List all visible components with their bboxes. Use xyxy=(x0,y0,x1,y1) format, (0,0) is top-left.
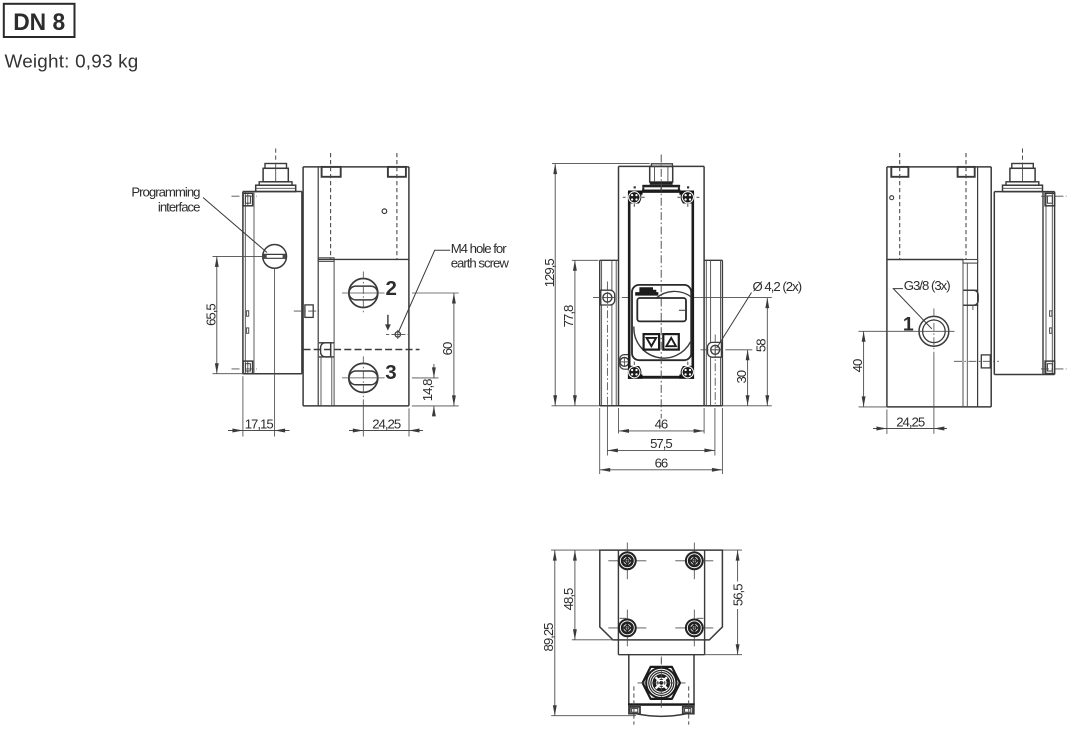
svg-text:17,15: 17,15 xyxy=(245,416,274,431)
svg-text:58: 58 xyxy=(754,339,769,352)
svg-text:DN 8: DN 8 xyxy=(13,9,65,36)
svg-text:129,5: 129,5 xyxy=(542,259,557,288)
svg-text:48,5: 48,5 xyxy=(561,588,576,610)
svg-text:24,25: 24,25 xyxy=(372,416,401,431)
svg-text:Weight: 0,93 kg: Weight: 0,93 kg xyxy=(5,51,139,72)
svg-text:1: 1 xyxy=(903,314,914,336)
svg-text:2: 2 xyxy=(385,277,396,300)
svg-text:77,8: 77,8 xyxy=(561,305,576,327)
svg-text:40: 40 xyxy=(850,359,865,372)
svg-text:89,25: 89,25 xyxy=(541,623,556,652)
svg-text:66: 66 xyxy=(655,456,668,471)
svg-text:earth screw: earth screw xyxy=(451,255,510,270)
svg-text:Programming: Programming xyxy=(131,185,200,200)
svg-text:57,5: 57,5 xyxy=(650,436,672,451)
svg-text:G3/8 (3x): G3/8 (3x) xyxy=(904,278,951,293)
svg-text:14,8: 14,8 xyxy=(420,379,435,401)
svg-text:30: 30 xyxy=(734,370,749,383)
svg-text:60: 60 xyxy=(440,342,455,355)
svg-text:M4 hole for: M4 hole for xyxy=(451,241,508,256)
svg-text:46: 46 xyxy=(655,417,668,432)
svg-text:65,5: 65,5 xyxy=(204,304,219,326)
svg-text:3: 3 xyxy=(385,361,396,384)
svg-text:24,25: 24,25 xyxy=(896,414,925,429)
svg-text:interface: interface xyxy=(158,200,200,215)
svg-text:Ø 4,2 (2x): Ø 4,2 (2x) xyxy=(753,279,802,294)
svg-text:56,5: 56,5 xyxy=(731,584,746,606)
